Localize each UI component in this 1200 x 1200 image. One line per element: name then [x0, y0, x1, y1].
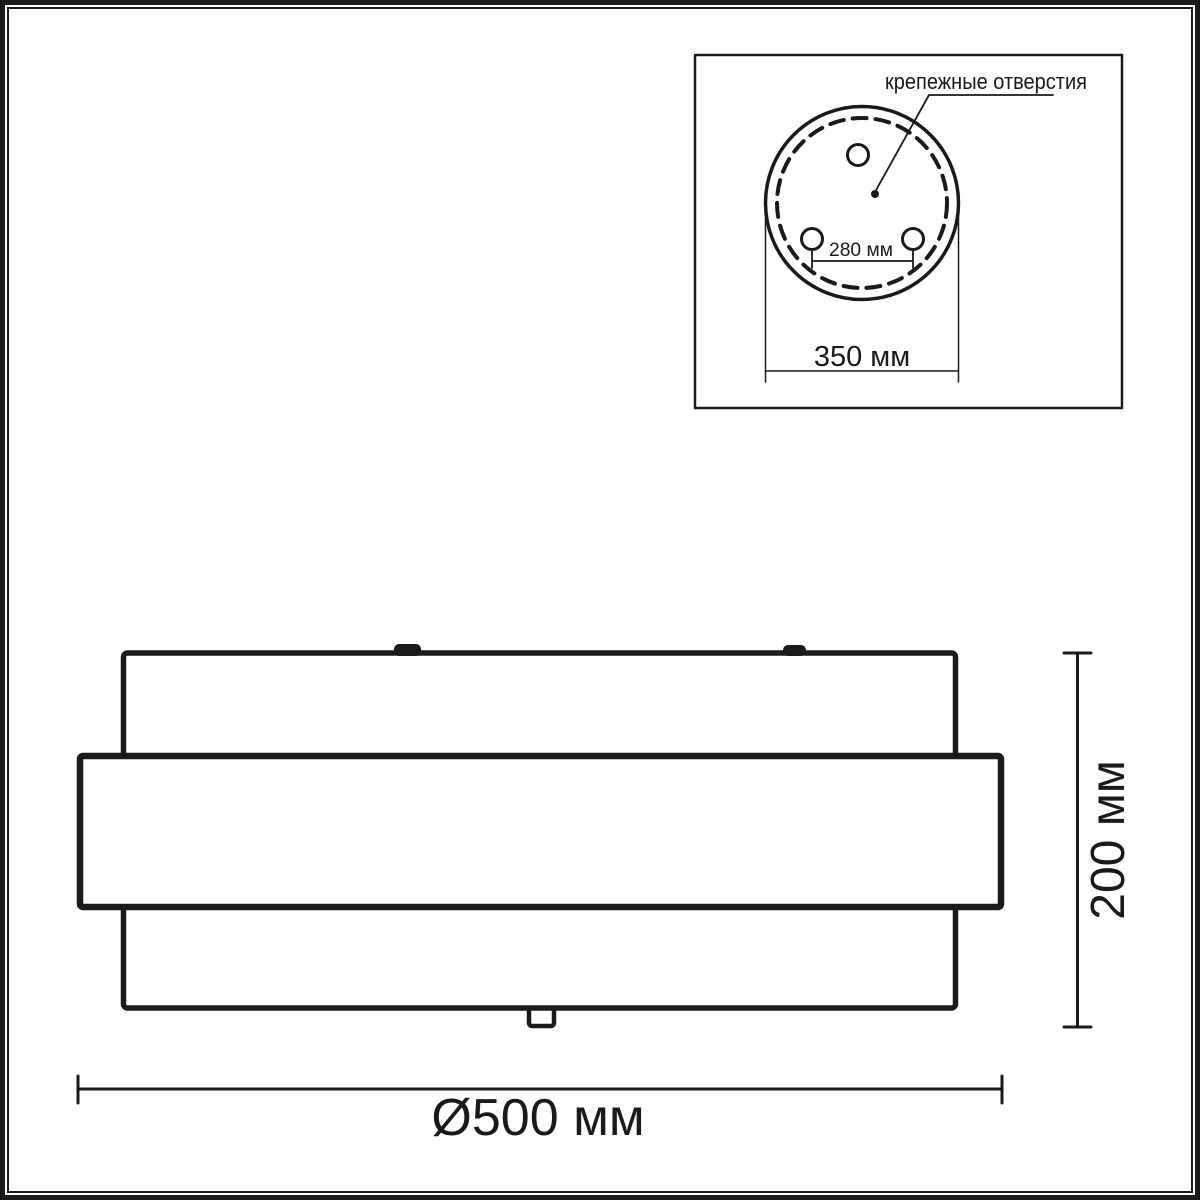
dim-height: 200 мм [1064, 653, 1135, 1027]
plate-dashed-circle [777, 118, 947, 288]
top-clip-left [394, 644, 421, 656]
lamp-side-view [80, 644, 1001, 1026]
plate-outer-circle [766, 107, 959, 300]
lamp-band [80, 756, 1001, 907]
mounting-hole-left [802, 229, 823, 250]
dim-280-label: 280 мм [829, 240, 893, 261]
mounting-holes-label: крепежные отверстия [885, 69, 1087, 94]
mounting-hole-right [903, 229, 924, 250]
dim-280: 280 мм [812, 240, 913, 268]
dim-height-label: 200 мм [1082, 760, 1135, 919]
dim-diameter: Ø500 мм [78, 1076, 1002, 1147]
mounting-hole-top [848, 145, 869, 166]
leader-dot [871, 190, 879, 198]
technical-drawing-canvas: крепежные отверстия 280 мм 350 мм [0, 0, 1200, 1200]
top-clip-right [783, 645, 806, 656]
dim-350-label: 350 мм [814, 341, 910, 373]
dim-350: 350 мм [766, 205, 959, 382]
lamp-dimension-drawing: крепежные отверстия 280 мм 350 мм [0, 0, 1200, 1200]
dim-diameter-label: Ø500 мм [431, 1089, 644, 1147]
mounting-plate-inset: крепежные отверстия 280 мм 350 мм [695, 55, 1122, 408]
leader-line [875, 95, 1053, 192]
